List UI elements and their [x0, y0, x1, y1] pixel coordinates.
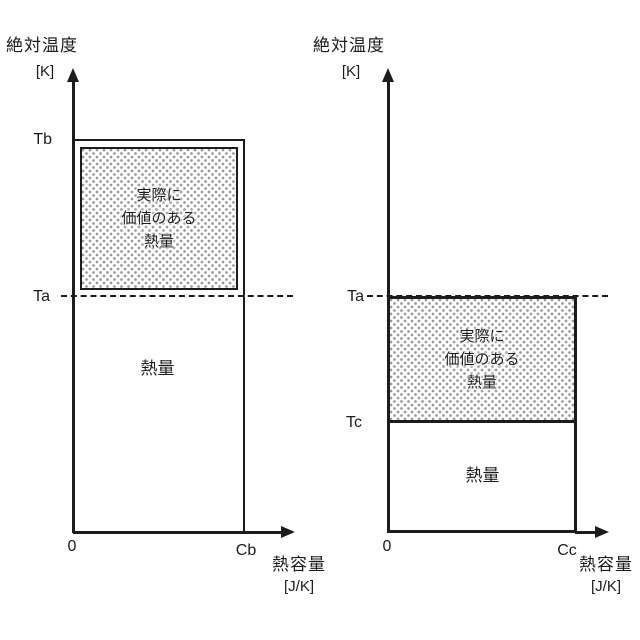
right-y-axis-arrow-icon: [382, 68, 394, 82]
right-valuable-heat-line1: 実際に: [459, 325, 504, 348]
right-valuable-heat-line2: 価値のある: [444, 348, 519, 371]
right-valuable-heat-line3: 熱量: [467, 371, 497, 394]
left-x-axis-arrow-icon: [281, 526, 295, 538]
left-tick-cb: Cb: [230, 542, 262, 560]
right-x-axis-arrow-icon: [595, 526, 609, 538]
left-tick-ta: Ta: [16, 288, 50, 306]
right-x-axis-line: [575, 531, 597, 534]
right-y-axis-title: 絶対温度: [313, 36, 399, 56]
left-y-axis-unit: [K]: [25, 63, 65, 80]
left-tick-origin: 0: [62, 538, 82, 556]
figure: 絶対温度 [K] 実際に 価値のある 熱量 Tb Ta 0 Cb 熱量 熱容量 …: [0, 0, 640, 640]
right-x-axis-title: 熱容量: [575, 555, 637, 575]
right-x-axis-unit: [J/K]: [580, 578, 632, 595]
left-valuable-heat-line1: 実際に: [136, 184, 181, 207]
left-valuable-heat-line3: 熱量: [144, 230, 174, 253]
left-tick-tb: Tb: [18, 131, 52, 149]
right-tick-tc: Tc: [328, 414, 362, 432]
left-x-axis-unit: [J/K]: [273, 578, 325, 595]
left-valuable-heat-region: 実際に 価値のある 熱量: [80, 147, 238, 290]
right-tick-ta: Ta: [330, 288, 364, 306]
right-tick-origin: 0: [377, 538, 397, 556]
right-y-axis-line: [387, 80, 390, 533]
left-x-axis-title: 熱容量: [268, 555, 330, 575]
right-y-axis-unit: [K]: [331, 63, 371, 80]
left-y-axis-title: 絶対温度: [6, 36, 92, 56]
left-y-axis-line: [72, 80, 75, 533]
left-valuable-heat-line2: 価値のある: [121, 207, 196, 230]
right-heat-rectangle: 実際に 価値のある 熱量: [387, 296, 577, 533]
left-y-axis-arrow-icon: [67, 68, 79, 82]
right-valuable-heat-region: 実際に 価値のある 熱量: [390, 299, 574, 423]
left-heat-label: 熱量: [110, 359, 205, 379]
right-heat-label: 熱量: [435, 466, 530, 486]
left-x-axis-line: [73, 531, 283, 534]
